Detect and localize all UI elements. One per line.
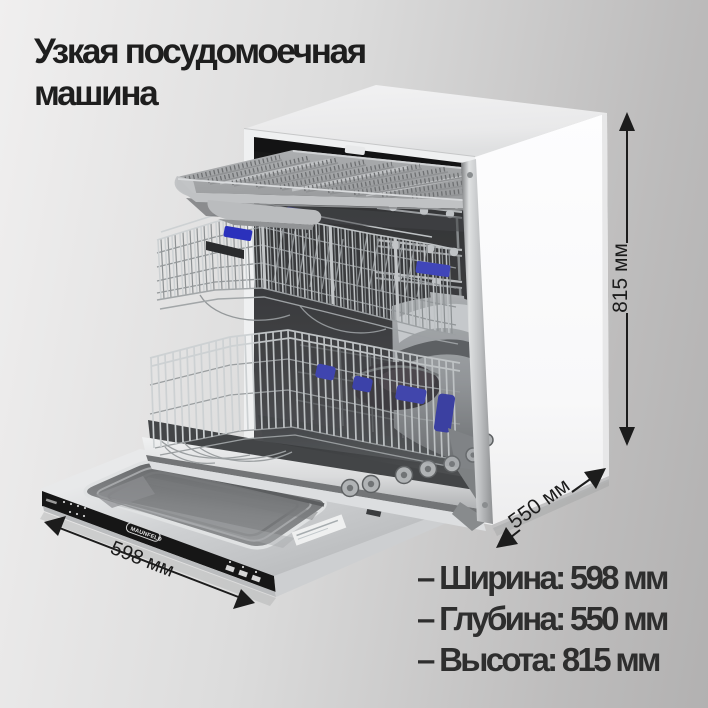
svg-text:815 мм: 815 мм bbox=[609, 243, 632, 313]
